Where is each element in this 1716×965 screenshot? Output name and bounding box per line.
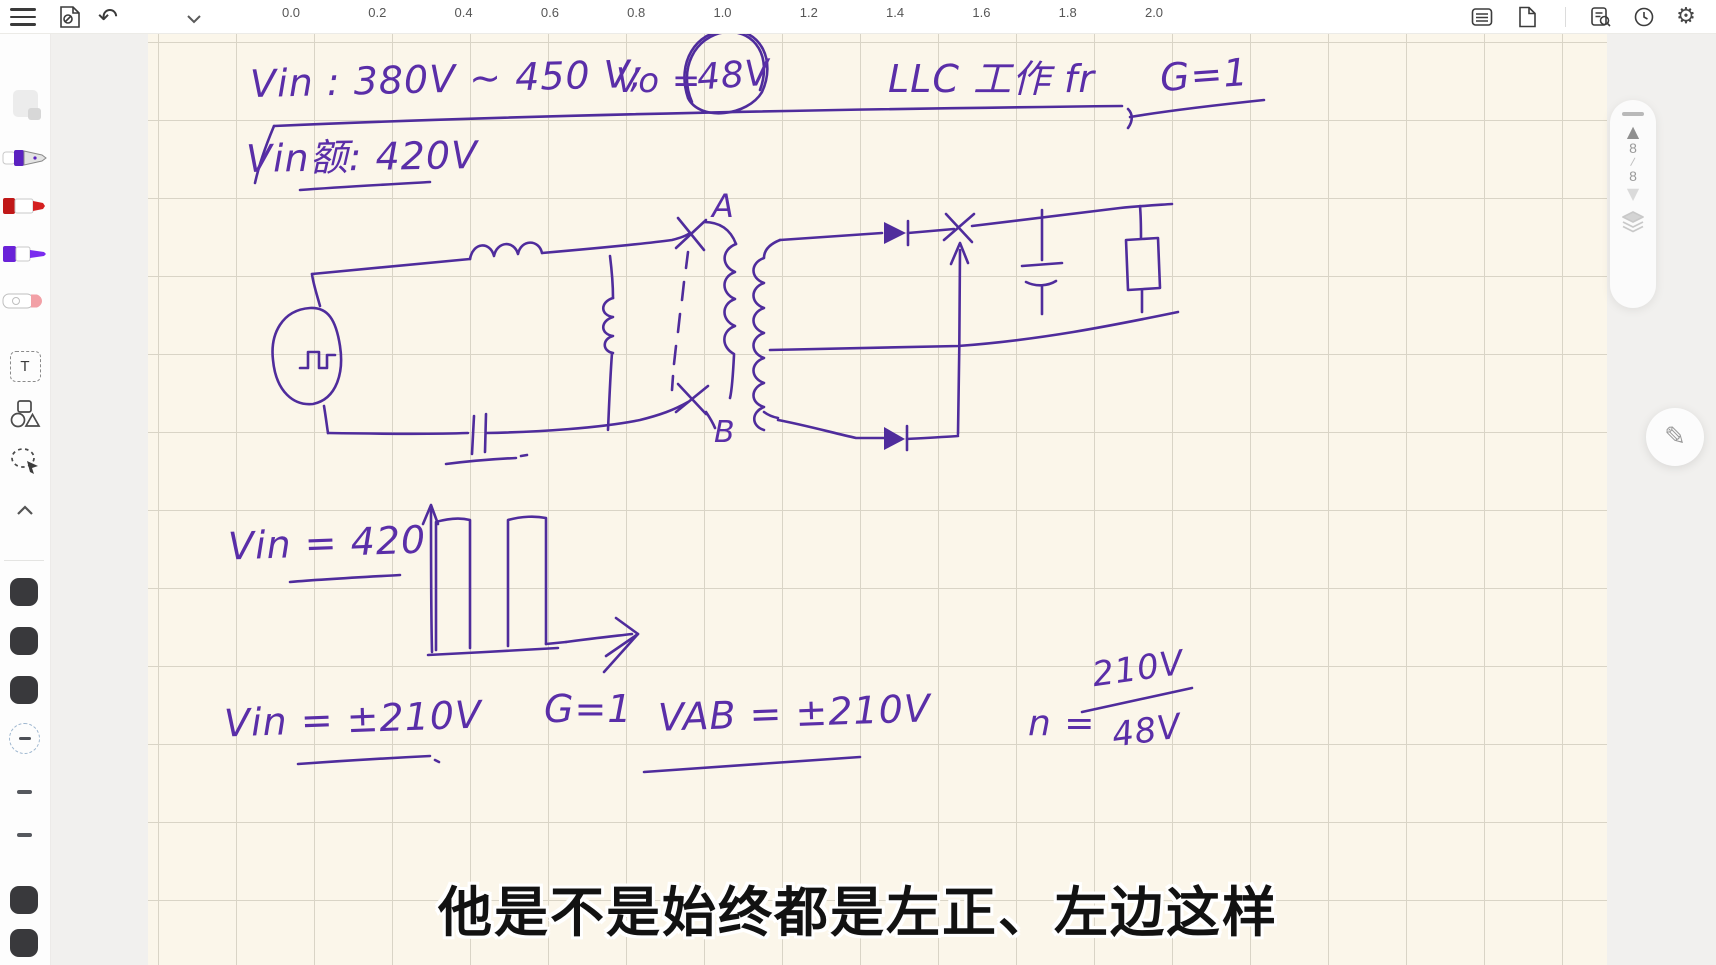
ruler-label: 1.6: [972, 5, 990, 20]
text-tool[interactable]: T: [0, 351, 50, 382]
video-subtitle: 他是不是始终都是左正、左边这样: [0, 868, 1716, 947]
ruler-label: 1.0: [713, 5, 731, 20]
purple-marker-icon: [2, 241, 48, 267]
ink-vo-value: 48V: [696, 55, 772, 96]
color-swatch-black-1[interactable]: [10, 578, 38, 606]
ruler-label: 1.8: [1059, 5, 1077, 20]
red-marker-icon: [2, 193, 48, 219]
ink-vab-pm210: VAB = ±210V: [657, 689, 931, 736]
red-marker-tool[interactable]: [0, 193, 50, 219]
fountain-pen-icon: [2, 145, 48, 171]
ruler-label: 0.6: [541, 5, 559, 20]
text-tool-label: T: [20, 358, 29, 375]
ruler-label: 0.8: [627, 5, 645, 20]
sticky-note-icon: [13, 90, 38, 117]
collapse-ruler-icon[interactable]: [186, 11, 202, 29]
color-swatch-black-5[interactable]: [10, 929, 38, 957]
search-document-icon[interactable]: [1587, 4, 1615, 30]
purple-marker-tool[interactable]: [0, 241, 50, 267]
ruler-label: 0.0: [282, 5, 300, 20]
pencil-icon: ✎: [1664, 422, 1686, 452]
ink-node-b: B: [714, 418, 736, 448]
shapes-tool[interactable]: [0, 398, 50, 430]
page-total: 8: [1629, 168, 1637, 184]
layers-icon[interactable]: [1621, 211, 1645, 238]
pencil-mode-button[interactable]: ✎: [1646, 408, 1704, 466]
hide-thumbnail-icon[interactable]: [56, 4, 84, 30]
top-toolbar: ↶ 0.00.20.40.60.81.01.21.41.61.82.0: [0, 0, 1716, 34]
canvas-left-gutter: [50, 33, 148, 965]
ruler-label: 0.2: [368, 5, 386, 20]
ruler-label: 1.2: [800, 5, 818, 20]
ink-llc-note: LLC 工作 fr: [888, 60, 1095, 98]
history-clock-icon[interactable]: [1630, 4, 1658, 30]
ink-gain-top: G=1: [1159, 53, 1250, 97]
fountain-pen-tool[interactable]: [0, 145, 50, 171]
lasso-select-tool[interactable]: [0, 445, 50, 477]
eraser-tool[interactable]: [0, 288, 50, 314]
collapse-tools-icon[interactable]: [0, 505, 50, 516]
toolbar-divider: [1565, 7, 1566, 27]
outline-list-icon[interactable]: [1468, 4, 1496, 30]
page-current: 8: [1629, 140, 1637, 156]
stroke-width-option-2[interactable]: [17, 833, 32, 837]
eraser-icon: [2, 288, 48, 314]
ruler-label: 2.0: [1145, 5, 1163, 20]
shapes-icon: [9, 398, 41, 430]
new-page-icon[interactable]: [1513, 4, 1541, 30]
menu-icon[interactable]: [10, 8, 36, 26]
whiteboard-app: Vin : 380V ~ 450 V; Vo = 48V LLC 工作 fr G…: [0, 0, 1716, 965]
color-swatch-black-2[interactable]: [10, 627, 38, 655]
page-separator: /: [1630, 155, 1636, 167]
tool-sidebar: T: [0, 33, 51, 965]
ink-gain-bottom: G=1: [544, 690, 632, 728]
ruler-label: 0.4: [455, 5, 473, 20]
ink-vo-label: Vo =: [616, 64, 701, 98]
ink-vin-rated: Vin额: 420V: [246, 136, 479, 178]
ink-turns-ratio-label: n =: [1028, 706, 1095, 742]
drag-handle[interactable]: [1622, 112, 1644, 116]
sticky-note-tool[interactable]: [0, 90, 50, 117]
undo-icon[interactable]: ↶: [94, 4, 122, 30]
lasso-icon: [9, 445, 41, 477]
color-swatch-black-3[interactable]: [10, 676, 38, 704]
ink-vin-pm210: Vin = ±210V: [223, 696, 482, 743]
sidebar-divider: [4, 560, 44, 561]
ink-turns-ratio-denominator: 48V: [1110, 709, 1184, 752]
page-down-icon[interactable]: ▼: [1627, 186, 1639, 202]
stroke-width-selected[interactable]: [9, 723, 40, 754]
ink-vin-range: Vin : 380V ~ 450 V;: [250, 55, 644, 103]
page-navigator: ▲ 8 / 8 ▼: [1610, 100, 1656, 308]
page-up-icon[interactable]: ▲: [1627, 124, 1639, 140]
ink-vin-420: Vin = 420: [227, 521, 426, 566]
ink-node-a: A: [712, 190, 735, 222]
color-swatch-black-4[interactable]: [10, 886, 38, 914]
stroke-width-option-1[interactable]: [17, 790, 32, 794]
settings-gear-icon[interactable]: ⚙: [1672, 4, 1700, 30]
ruler-label: 1.4: [886, 5, 904, 20]
